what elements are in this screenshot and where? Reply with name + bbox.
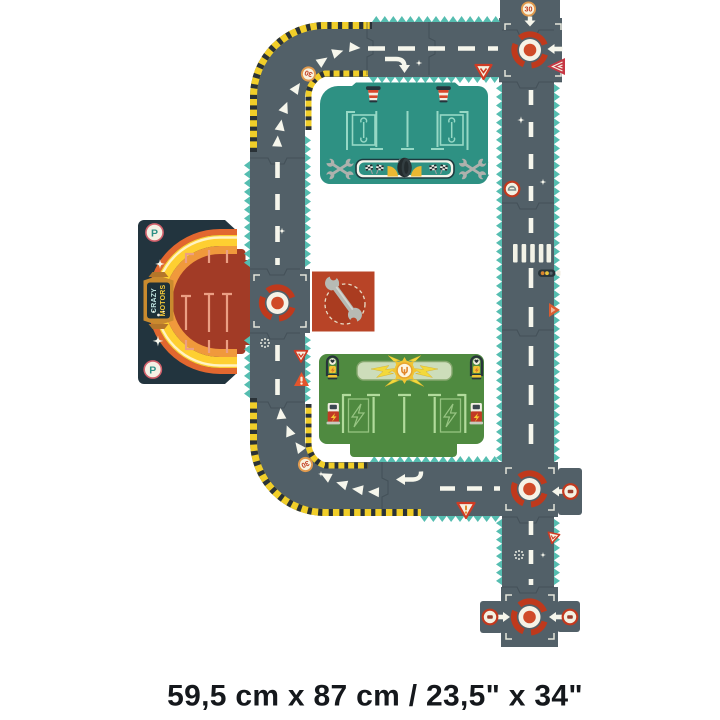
svg-text:P: P (149, 364, 156, 376)
svg-text:59,5 cm x 87 cm / 23,5" x 34": 59,5 cm x 87 cm / 23,5" x 34" (167, 680, 583, 713)
svg-text:CRAZY: CRAZY (151, 288, 158, 313)
svg-text:P: P (151, 227, 158, 239)
